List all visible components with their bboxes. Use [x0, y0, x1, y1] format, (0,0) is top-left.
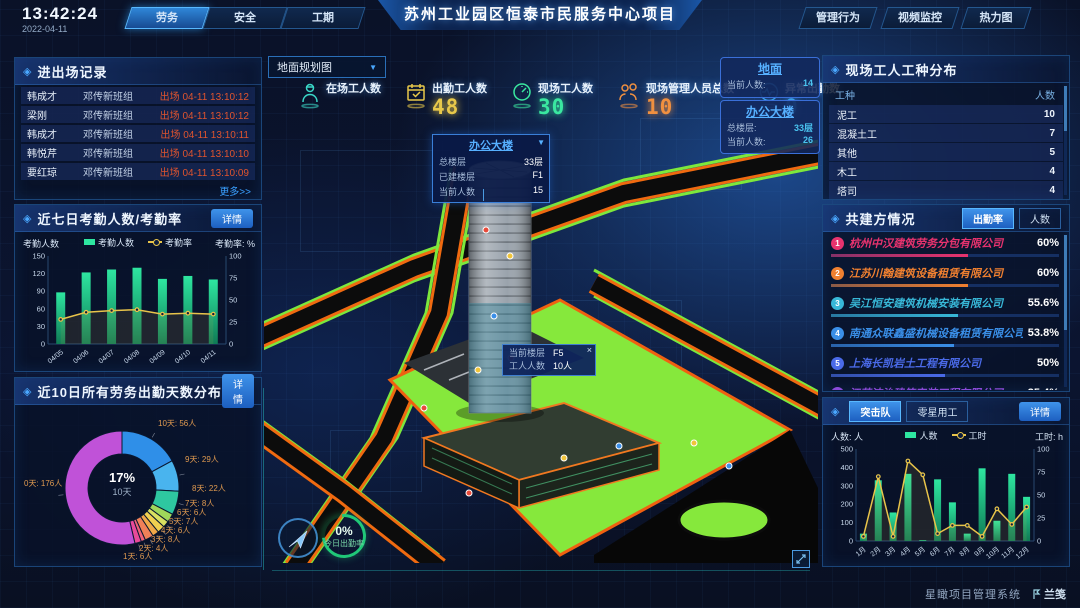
- panel-title: 现场工人工种分布: [845, 60, 957, 79]
- more-link[interactable]: 更多>>: [25, 183, 251, 198]
- worker-group: 邓传新班组: [83, 164, 160, 179]
- partner-bar-fill: [831, 374, 945, 377]
- assault-detail-button[interactable]: 详情: [1019, 402, 1061, 421]
- svg-text:75: 75: [1037, 468, 1045, 477]
- tooltip-pointer: [483, 189, 484, 201]
- partner-rate: 60%: [1037, 267, 1059, 279]
- rank-badge: 6: [831, 387, 844, 391]
- distribution-detail-button[interactable]: 详情: [222, 374, 254, 408]
- svg-text:100: 100: [840, 518, 853, 527]
- stat-managers: 现场管理人员总数 10: [616, 80, 734, 118]
- diamond-icon: ◈: [23, 212, 31, 225]
- partner-bar-track: [831, 254, 1059, 257]
- tab-attendance-rate[interactable]: 出勤率: [962, 208, 1014, 229]
- svg-text:0: 0: [229, 340, 233, 349]
- worker-name: 韩成才: [27, 126, 83, 141]
- tab-assault-team[interactable]: 突击队: [849, 401, 901, 422]
- worker-group: 邓传新班组: [83, 145, 160, 160]
- svg-text:12月: 12月: [1014, 545, 1031, 560]
- bar-legend-swatch: [84, 239, 95, 245]
- partner-bar-track: [831, 284, 1059, 287]
- rank-badge: 1: [831, 237, 844, 250]
- stat-onsite-workers: 在场工人数: [298, 80, 381, 118]
- svg-text:04/10: 04/10: [174, 349, 192, 365]
- partner-bar-track: [831, 314, 1059, 317]
- donut-slice-label: 9天: 29人: [185, 454, 219, 465]
- partner-bar-fill: [831, 284, 968, 287]
- view-select[interactable]: 地面规划图 ▼: [268, 56, 386, 78]
- building-tooltip[interactable]: 办公大楼 ▼ 总楼层33层 已建楼层F1 当前人数15: [432, 134, 550, 203]
- panel-title: 共建方情况: [845, 209, 915, 228]
- worker-count: 4: [1049, 185, 1055, 196]
- worker-types-table: 泥工 10 混凝土工 7 其他 5 木工 4: [823, 105, 1069, 199]
- attendance-detail-button[interactable]: 详情: [211, 209, 253, 228]
- entry-exit-panel: ◈ 进出场记录 韩成才 邓传新班组 出场 04-11 13:10:12 梁刚 邓…: [14, 57, 262, 200]
- svg-text:50: 50: [1037, 491, 1045, 500]
- svg-text:30: 30: [37, 322, 45, 331]
- worker-name: 韩悦芹: [27, 145, 83, 160]
- scrollbar[interactable]: [1064, 86, 1067, 195]
- svg-text:200: 200: [840, 500, 853, 509]
- svg-text:90: 90: [37, 287, 45, 296]
- today-attendance-gauge: 0% 今日出勤率: [322, 514, 366, 558]
- line-legend-swatch: [148, 241, 162, 243]
- bar-legend-swatch: [905, 432, 916, 438]
- chart-legend: 人数 工时: [823, 429, 1069, 442]
- y2-axis-caption: 工时: h: [1035, 430, 1063, 443]
- brand-logo: 兰笺: [1031, 586, 1066, 602]
- partner-row: 6 江苏洁治建筑安装工程有限公司 35.4%: [831, 385, 1059, 390]
- partner-rate: 55.6%: [1028, 297, 1059, 309]
- svg-text:60: 60: [37, 304, 45, 313]
- donut-slice-label: 1天: 6人: [123, 551, 152, 562]
- worker-name: 韩成才: [27, 88, 83, 103]
- close-icon[interactable]: ×: [587, 345, 592, 355]
- tab-heatmap[interactable]: 热力图: [964, 7, 1028, 29]
- svg-text:6月: 6月: [928, 545, 942, 558]
- partner-bar-track: [831, 374, 1059, 377]
- page-title: 苏州工业园区恒泰市民服务中心项目: [378, 0, 702, 30]
- rank-badge: 3: [831, 297, 844, 310]
- panel-title: 近10日所有劳务出勤天数分布: [37, 382, 221, 401]
- tab-odd-jobs[interactable]: 零星用工: [906, 401, 968, 422]
- partner-bar-track: [831, 344, 1059, 347]
- partner-bar-fill: [831, 254, 968, 257]
- partner-row: 5 上海长凯岩土工程有限公司 50%: [831, 355, 1059, 382]
- diamond-icon: ◈: [23, 385, 31, 398]
- ground-card[interactable]: 地面 当前人数:14: [720, 57, 820, 98]
- svg-text:04/07: 04/07: [98, 349, 116, 365]
- tab-headcount[interactable]: 人数: [1019, 208, 1061, 229]
- divider-line: [263, 388, 264, 570]
- svg-text:5月: 5月: [913, 545, 927, 558]
- clock: 13:42:24 2022-04-11: [22, 5, 98, 35]
- svg-text:0: 0: [849, 537, 853, 546]
- partner-name: 上海长凯岩土工程有限公司: [849, 355, 1032, 371]
- partner-row: 1 杭州中汉建筑劳务分包有限公司 60%: [831, 235, 1059, 262]
- entry-exit-row: 韩成才 邓传新班组 出场 04-11 13:10:11: [21, 125, 255, 142]
- exit-event: 出场 04-11 13:10:11: [160, 126, 249, 141]
- partners-panel: ◈ 共建方情况 出勤率 人数 1 杭州中汉建筑劳务分包有限公司 60%: [822, 204, 1070, 392]
- partner-rate: 50%: [1037, 357, 1059, 369]
- donut-slice-label: 0天: 176人: [24, 478, 62, 489]
- partner-bar-fill: [831, 314, 958, 317]
- donut-chart: 17% 10天 10天: 56人 9天: 29人 8天: 22人 7天: 8人 …: [22, 410, 254, 562]
- exit-event: 出场 04-11 13:10:12: [160, 107, 249, 122]
- calendar-check-icon: [404, 80, 428, 110]
- office-building-card[interactable]: 办公大楼 总楼层:33层 当前人数:26: [720, 100, 820, 154]
- svg-text:100: 100: [229, 252, 242, 261]
- exit-event: 出场 04-11 13:10:10: [160, 145, 249, 160]
- entry-exit-row: 梁刚 邓传新班组 出场 04-11 13:10:12: [21, 106, 255, 123]
- svg-text:50: 50: [229, 296, 237, 305]
- entry-exit-row: 韩成才 邓传新班组 出场 04-11 13:10:12: [21, 87, 255, 104]
- worker-type: 泥工: [837, 107, 857, 122]
- compass-icon[interactable]: [278, 518, 318, 558]
- y2-axis-caption: 考勤率: %: [215, 237, 255, 250]
- partner-name: 吴江恒安建筑机械安装有限公司: [849, 295, 1023, 311]
- table-row: 塔司 4: [829, 181, 1063, 199]
- svg-text:04/09: 04/09: [149, 349, 167, 365]
- diamond-icon: ◈: [831, 63, 839, 76]
- gauge-icon: [510, 80, 534, 110]
- stat-attending-workers: 出勤工人数 48: [404, 80, 487, 118]
- partner-rate: 60%: [1037, 237, 1059, 249]
- line-legend-swatch: [952, 434, 966, 436]
- brand-icon: [1031, 588, 1041, 600]
- worker-name: 要红琼: [27, 164, 83, 179]
- svg-text:300: 300: [840, 481, 853, 490]
- donut-slice-label: 10天: 56人: [158, 418, 196, 429]
- panel-title: 近七日考勤人数/考勤率: [37, 209, 182, 228]
- tab-management-behavior[interactable]: 管理行为: [802, 7, 874, 29]
- time-label: 13:42:24: [22, 5, 98, 24]
- dashboard: 13:42:24 2022-04-11 劳务 安全 工期 苏州工业园区恒泰市民服…: [0, 0, 1080, 608]
- rank-badge: 4: [831, 327, 844, 340]
- svg-text:2月: 2月: [869, 545, 883, 558]
- floor-tooltip[interactable]: × 当前楼层F5 工人人数10人: [502, 344, 596, 376]
- svg-text:150: 150: [32, 252, 45, 261]
- divider-line: [272, 570, 810, 571]
- svg-text:8月: 8月: [958, 545, 972, 558]
- worker-group: 邓传新班组: [83, 107, 160, 122]
- worker-group: 邓传新班组: [83, 126, 160, 141]
- table-row: 混凝土工 7: [829, 124, 1063, 142]
- assault-monthly-chart: 010020030040050002550751001月2月3月4月5月6月7月…: [828, 443, 1062, 567]
- partner-name: 南通众联鑫盛机械设备租赁有限公司: [849, 325, 1023, 341]
- svg-text:100: 100: [1037, 445, 1050, 454]
- tab-video-monitor[interactable]: 视频监控: [884, 7, 956, 29]
- partners-list: 1 杭州中汉建筑劳务分包有限公司 60% 2 江苏川翰建筑设备租赁有限公司 60…: [823, 232, 1069, 390]
- assault-team-panel: ◈ 突击队 零星用工 详情 人数: 人 人数 工时 工时: h 01002003…: [822, 397, 1070, 567]
- worker-count: 4: [1049, 166, 1055, 177]
- distribution-panel: ◈ 近10日所有劳务出勤天数分布 详情 17% 10天 10天: 56人 9天:…: [14, 377, 262, 567]
- svg-text:0: 0: [1037, 537, 1041, 546]
- partner-bar-fill: [831, 344, 954, 347]
- map-area: 地面规划图 ▼ 在场工人数 出勤工人数 48: [264, 48, 818, 570]
- diamond-icon: ◈: [831, 212, 839, 225]
- entry-exit-row: 要红琼 邓传新班组 出场 04-11 13:10:09: [21, 163, 255, 180]
- chevron-down-icon[interactable]: ▼: [537, 138, 545, 147]
- worker-type: 塔司: [837, 183, 857, 198]
- scrollbar[interactable]: [1064, 235, 1067, 387]
- svg-text:120: 120: [32, 269, 45, 278]
- worker-count: 7: [1049, 128, 1055, 139]
- diamond-icon: ◈: [23, 65, 31, 78]
- table-row: 木工 4: [829, 162, 1063, 180]
- fullscreen-icon[interactable]: [792, 550, 810, 568]
- svg-text:4月: 4月: [899, 545, 913, 558]
- tab-safety[interactable]: 安全: [206, 7, 284, 29]
- panel-title: 进出场记录: [37, 62, 107, 81]
- svg-text:3月: 3月: [884, 545, 898, 558]
- table-row: 其他 5: [829, 143, 1063, 161]
- people-icon: [616, 80, 642, 110]
- partner-row: 2 江苏川翰建筑设备租赁有限公司 60%: [831, 265, 1059, 292]
- exit-event: 出场 04-11 13:10:12: [160, 88, 249, 103]
- svg-text:04/11: 04/11: [200, 349, 218, 365]
- svg-text:7月: 7月: [943, 545, 957, 558]
- diamond-icon: ◈: [831, 405, 839, 418]
- svg-text:75: 75: [229, 274, 237, 283]
- svg-text:1月: 1月: [854, 545, 868, 558]
- worker-type: 木工: [837, 164, 857, 179]
- svg-text:25: 25: [1037, 514, 1045, 523]
- table-row: 泥工 10: [829, 105, 1063, 123]
- svg-text:11月: 11月: [1000, 545, 1016, 560]
- svg-text:04/05: 04/05: [47, 349, 65, 365]
- footer: 星瞰项目管理系统 兰笺: [925, 586, 1066, 602]
- exit-event: 出场 04-11 13:10:09: [160, 164, 249, 179]
- worker-count: 5: [1049, 147, 1055, 158]
- partner-name: 江苏洁治建筑安装工程有限公司: [849, 385, 1023, 390]
- partner-name: 江苏川翰建筑设备租赁有限公司: [849, 265, 1032, 281]
- worker-name: 梁刚: [27, 107, 83, 122]
- tab-labor[interactable]: 劳务: [128, 7, 206, 29]
- entry-exit-row: 韩悦芹 邓传新班组 出场 04-11 13:10:10: [21, 144, 255, 161]
- worker-type: 其他: [837, 145, 857, 160]
- partner-row: 3 吴江恒安建筑机械安装有限公司 55.6%: [831, 295, 1059, 322]
- svg-text:400: 400: [840, 463, 853, 472]
- svg-text:0: 0: [41, 340, 45, 349]
- chevron-down-icon: ▼: [369, 63, 377, 72]
- date-label: 2022-04-11: [22, 25, 98, 35]
- svg-text:9月: 9月: [973, 545, 987, 558]
- svg-text:25: 25: [229, 318, 237, 327]
- worker-icon: [298, 80, 322, 110]
- worker-type: 混凝土工: [837, 126, 877, 141]
- svg-text:10月: 10月: [985, 545, 1002, 560]
- donut-slice-label: 8天: 22人: [192, 483, 226, 494]
- system-name: 星瞰项目管理系统: [925, 586, 1021, 602]
- partner-name: 杭州中汉建筑劳务分包有限公司: [849, 235, 1032, 251]
- partner-rate: 35.4%: [1028, 387, 1059, 390]
- table-header: 工种 人数: [823, 83, 1069, 104]
- partner-rate: 53.8%: [1028, 327, 1059, 339]
- entry-exit-list: 韩成才 邓传新班组 出场 04-11 13:10:12 梁刚 邓传新班组 出场 …: [15, 87, 261, 180]
- svg-text:04/06: 04/06: [72, 349, 90, 365]
- rank-badge: 5: [831, 357, 844, 370]
- stat-site-workers: 现场工人数 30: [510, 80, 593, 118]
- attendance-chart: 0306090120150025507510004/0504/0604/0704…: [20, 250, 254, 370]
- attendance-panel: ◈ 近七日考勤人数/考勤率 详情 考勤人数 考勤人数 考勤率 考勤率: % 03…: [14, 204, 262, 372]
- svg-text:500: 500: [840, 445, 853, 454]
- partner-row: 4 南通众联鑫盛机械设备租赁有限公司 53.8%: [831, 325, 1059, 352]
- worker-count: 10: [1044, 109, 1055, 120]
- worker-types-panel: ◈ 现场工人工种分布 工种 人数 泥工 10 混凝土工 7 其他: [822, 55, 1070, 200]
- svg-text:04/08: 04/08: [123, 349, 141, 365]
- rank-badge: 2: [831, 267, 844, 280]
- donut-center: 17% 10天: [90, 470, 154, 498]
- tab-schedule[interactable]: 工期: [284, 7, 362, 29]
- worker-group: 邓传新班组: [83, 88, 160, 103]
